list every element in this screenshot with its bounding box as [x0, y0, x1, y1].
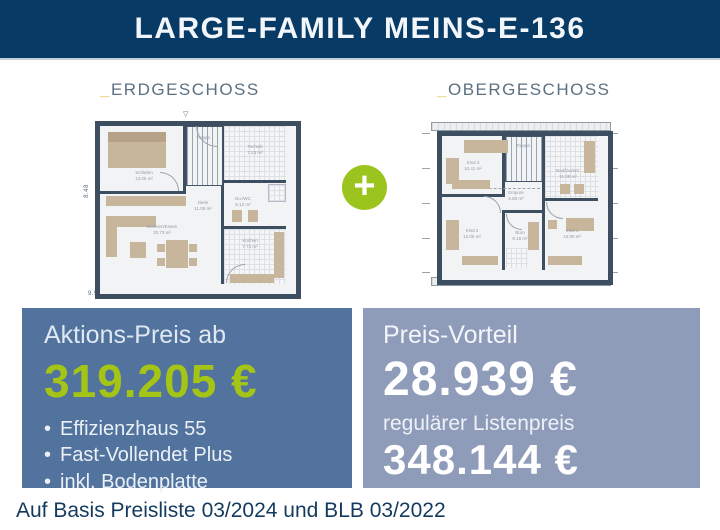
room-label: Schlafen 13.05 m² — [135, 170, 153, 182]
floorplans-section: _ERDGESCHOSS _OBERGESCHOSS ▽ 8.48 9.58 — [0, 58, 720, 308]
door-arc — [506, 214, 522, 230]
feature-text: Effizienzhaus 55 — [60, 416, 206, 442]
bed — [446, 220, 459, 250]
wall — [442, 194, 505, 197]
dining-chair — [189, 244, 197, 252]
list-price-value: 348.144 € — [383, 436, 700, 484]
obergeschoss-label: _OBERGESCHOSS — [437, 80, 611, 100]
room-area: 7.23 m² — [247, 150, 262, 156]
room-area: 11.05 m² — [194, 206, 211, 212]
desk — [452, 180, 490, 189]
toilet — [248, 210, 258, 222]
room-label: Kind 3 10.41 m² — [464, 160, 482, 172]
dining-chair — [189, 258, 197, 266]
room-label: Treppe — [196, 135, 210, 141]
bullet-dot: • — [44, 442, 51, 468]
erdgeschoss-floorplan: Schlafen 13.05 m² Treppe Technik 7.23 m²… — [95, 121, 301, 299]
room-name: Kind 1 — [563, 228, 581, 234]
room-label: Treppe — [516, 143, 530, 149]
room-label: Wohnen/Essen 30.73 m² — [147, 224, 177, 236]
wall — [221, 226, 286, 229]
wall — [502, 210, 545, 213]
feature-text: inkl. Bodenplatte — [60, 469, 208, 495]
plus-icon: + — [342, 165, 387, 210]
feature-item: • inkl. Bodenplatte — [44, 469, 352, 495]
toilet — [574, 184, 584, 194]
action-price-label: Aktions-Preis ab — [44, 321, 352, 350]
dimension-tick — [422, 168, 430, 169]
bed — [464, 140, 508, 153]
dimension-tick — [422, 272, 430, 273]
erdgeschoss-label: _ERDGESCHOSS — [100, 80, 260, 100]
room-label: Du./WC 5.12 m² — [235, 196, 251, 208]
room-name: Treppe — [196, 135, 210, 141]
bathtub — [584, 141, 595, 173]
feature-item: • Fast-Vollendet Plus — [44, 442, 352, 468]
room-area: 30.73 m² — [147, 230, 177, 236]
room-area: 6.89 m² — [508, 196, 524, 202]
dining-chair — [157, 258, 165, 266]
feature-list: • Effizienzhaus 55 • Fast-Vollendet Plus… — [44, 416, 352, 495]
room-label: Kind 1 13.80 m² — [563, 228, 581, 240]
desk — [528, 222, 539, 250]
room-label: Technik 7.23 m² — [247, 144, 262, 156]
dining-chair — [157, 244, 165, 252]
room-area: 5.12 m² — [235, 202, 251, 208]
label-underscore: _ — [100, 80, 111, 99]
room-area: 10.41 m² — [464, 166, 482, 172]
room-label: Bad/Du/WC 11.08 m² — [556, 168, 580, 180]
room-area: 13.05 m² — [135, 176, 153, 182]
door-arc — [546, 202, 563, 219]
room-name: Kochen — [242, 238, 257, 244]
feature-item: • Effizienzhaus 55 — [44, 416, 352, 442]
dimension-tick — [422, 238, 430, 239]
wall — [221, 180, 286, 183]
action-price-box: Aktions-Preis ab 319.205 € • Effizienzha… — [22, 308, 352, 488]
obergeschoss-label-text: OBERGESCHOSS — [448, 80, 611, 99]
advantage-price-box: Preis-Vorteil 28.939 € regulärer Listenp… — [363, 308, 700, 488]
room-name: Bad/Du/WC — [556, 168, 580, 174]
wall — [542, 198, 598, 201]
bed-pillow — [108, 132, 166, 142]
sink — [560, 184, 570, 194]
room-label: Empore 6.89 m² — [508, 190, 524, 202]
room-name: Du./WC — [235, 196, 251, 202]
room-label: Diele 11.05 m² — [194, 200, 211, 212]
footnote: Auf Basis Preisliste 03/2024 und BLB 03/… — [16, 499, 446, 523]
room-area: 12.05 m² — [463, 234, 481, 240]
coffee-table — [130, 242, 146, 258]
feature-text: Fast-Vollendet Plus — [60, 442, 232, 468]
page-title: LARGE-FAMILY MEINS-E-136 — [134, 12, 585, 46]
sofa — [106, 227, 117, 257]
room-name: Technik — [247, 144, 262, 150]
room-label: Büro 8.16 m² — [512, 230, 527, 242]
dining-table — [166, 240, 188, 268]
railing — [484, 188, 540, 189]
room-name: Kind 3 — [464, 160, 482, 166]
label-underscore: _ — [437, 80, 448, 99]
side-table — [548, 220, 557, 229]
room-area: 8.16 m² — [512, 236, 527, 242]
room-name: Kind 2 — [463, 228, 481, 234]
list-price-label: regulärer Listenpreis — [383, 412, 700, 436]
room-label: Kochen 7.73 m² — [242, 238, 257, 250]
shower — [268, 184, 286, 202]
flyer-page: { "header": { "title": "LARGE-FAMILY MEI… — [0, 0, 720, 530]
room-name: Empore — [508, 190, 524, 196]
elevation-marker-icon: ▽ — [183, 110, 188, 118]
bullet-dot: • — [44, 469, 51, 495]
dimension-tick — [422, 203, 430, 204]
advantage-label: Preis-Vorteil — [383, 321, 700, 350]
room-area: 7.73 m² — [242, 244, 257, 250]
wall — [502, 210, 505, 270]
roof-edge-strip — [431, 122, 611, 131]
room-name: Treppe — [516, 143, 530, 149]
erdgeschoss-label-text: ERDGESCHOSS — [111, 80, 260, 99]
action-price-value: 319.205 € — [44, 354, 352, 408]
bullet-dot: • — [44, 416, 51, 442]
tiled-floor — [506, 248, 528, 268]
kitchen-counter — [274, 232, 284, 278]
room-name: Wohnen/Essen — [147, 224, 177, 230]
room-area: 11.08 m² — [556, 174, 580, 180]
obergeschoss-floorplan: Kind 3 10.41 m² Treppe Bad/Du/WC 11.08 m… — [437, 131, 613, 285]
advantage-value: 28.939 € — [383, 352, 700, 407]
room-label: Kind 2 12.05 m² — [463, 228, 481, 240]
room-area: 13.80 m² — [563, 234, 581, 240]
desk — [462, 256, 498, 265]
sideboard — [106, 196, 186, 206]
wardrobe — [548, 256, 582, 265]
wall — [100, 191, 186, 194]
dimension-tick — [422, 133, 430, 134]
door-arc — [160, 172, 179, 191]
door-arc — [484, 196, 501, 213]
sink — [232, 210, 242, 222]
header-bar: LARGE-FAMILY MEINS-E-136 — [0, 0, 720, 60]
dimension-label: 8.48 — [84, 184, 90, 198]
room-name: Schlafen — [135, 170, 153, 176]
